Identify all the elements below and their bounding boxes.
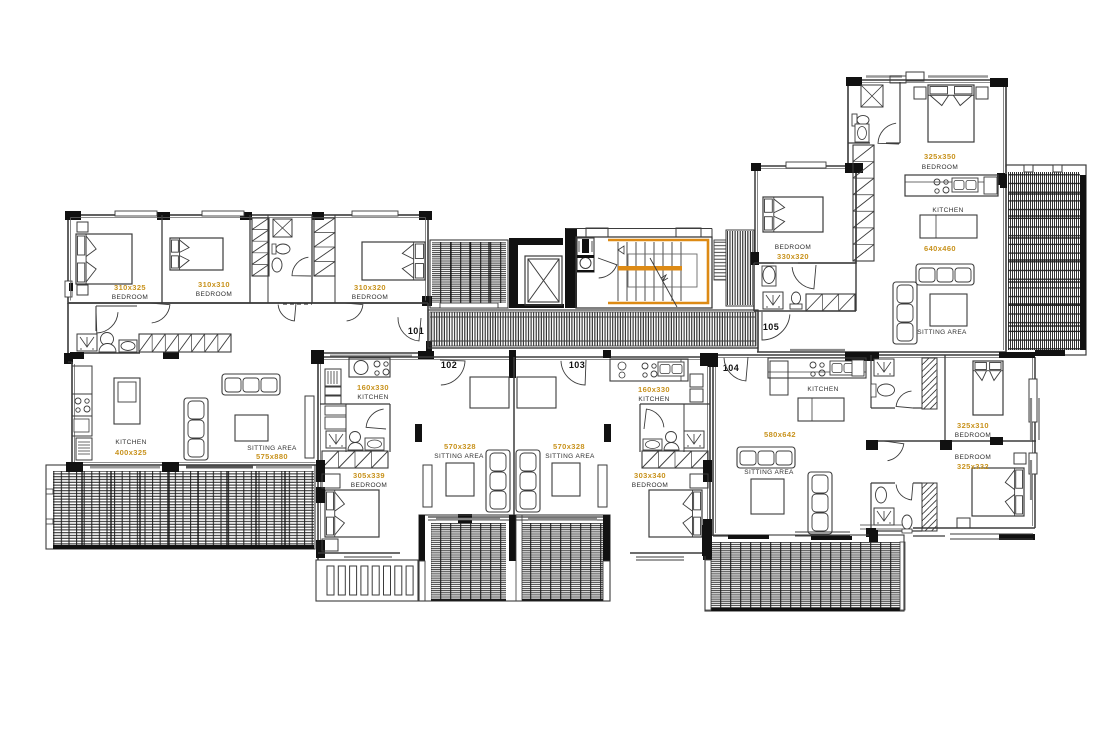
svg-text:101: 101 [408, 326, 424, 336]
svg-text:640x460: 640x460 [924, 244, 956, 253]
svg-text:BEDROOM: BEDROOM [775, 244, 811, 251]
svg-text:310x325: 310x325 [114, 283, 146, 292]
svg-text:303x340: 303x340 [634, 471, 666, 480]
svg-text:KITCHEN: KITCHEN [115, 439, 146, 446]
svg-text:310x320: 310x320 [354, 283, 386, 292]
svg-text:400x325: 400x325 [115, 448, 147, 457]
svg-text:BEDROOM: BEDROOM [955, 432, 991, 439]
svg-text:310x310: 310x310 [198, 280, 230, 289]
svg-text:570x328: 570x328 [553, 442, 585, 451]
svg-text:305x339: 305x339 [353, 471, 385, 480]
svg-text:570x328: 570x328 [444, 442, 476, 451]
svg-text:SITTING AREA: SITTING AREA [917, 329, 967, 336]
svg-text:KITCHEN: KITCHEN [932, 207, 963, 214]
svg-text:325x310: 325x310 [957, 421, 989, 430]
svg-text:BEDROOM: BEDROOM [196, 291, 232, 298]
svg-text:160x330: 160x330 [638, 385, 670, 394]
svg-text:BEDROOM: BEDROOM [351, 482, 387, 489]
svg-text:BEDROOM: BEDROOM [112, 294, 148, 301]
svg-text:103: 103 [569, 360, 585, 370]
svg-text:BEDROOM: BEDROOM [922, 164, 958, 171]
svg-text:330x320: 330x320 [777, 252, 809, 261]
svg-text:575x880: 575x880 [256, 452, 288, 461]
svg-text:KITCHEN: KITCHEN [357, 394, 388, 401]
svg-text:BEDROOM: BEDROOM [955, 454, 991, 461]
svg-text:102: 102 [441, 360, 457, 370]
svg-text:325x350: 325x350 [924, 152, 956, 161]
svg-text:160x330: 160x330 [357, 383, 389, 392]
svg-text:105: 105 [763, 322, 779, 332]
svg-text:325x332: 325x332 [957, 462, 989, 471]
svg-text:BEDROOM: BEDROOM [352, 294, 388, 301]
svg-text:KITCHEN: KITCHEN [807, 386, 838, 393]
svg-text:SITTING AREA: SITTING AREA [434, 453, 484, 460]
svg-text:SITTING AREA: SITTING AREA [545, 453, 595, 460]
svg-text:BEDROOM: BEDROOM [632, 482, 668, 489]
svg-text:SITTING AREA: SITTING AREA [744, 469, 794, 476]
svg-text:580x642: 580x642 [764, 430, 796, 439]
svg-text:KITCHEN: KITCHEN [638, 396, 669, 403]
svg-text:SITTING AREA: SITTING AREA [247, 445, 297, 452]
